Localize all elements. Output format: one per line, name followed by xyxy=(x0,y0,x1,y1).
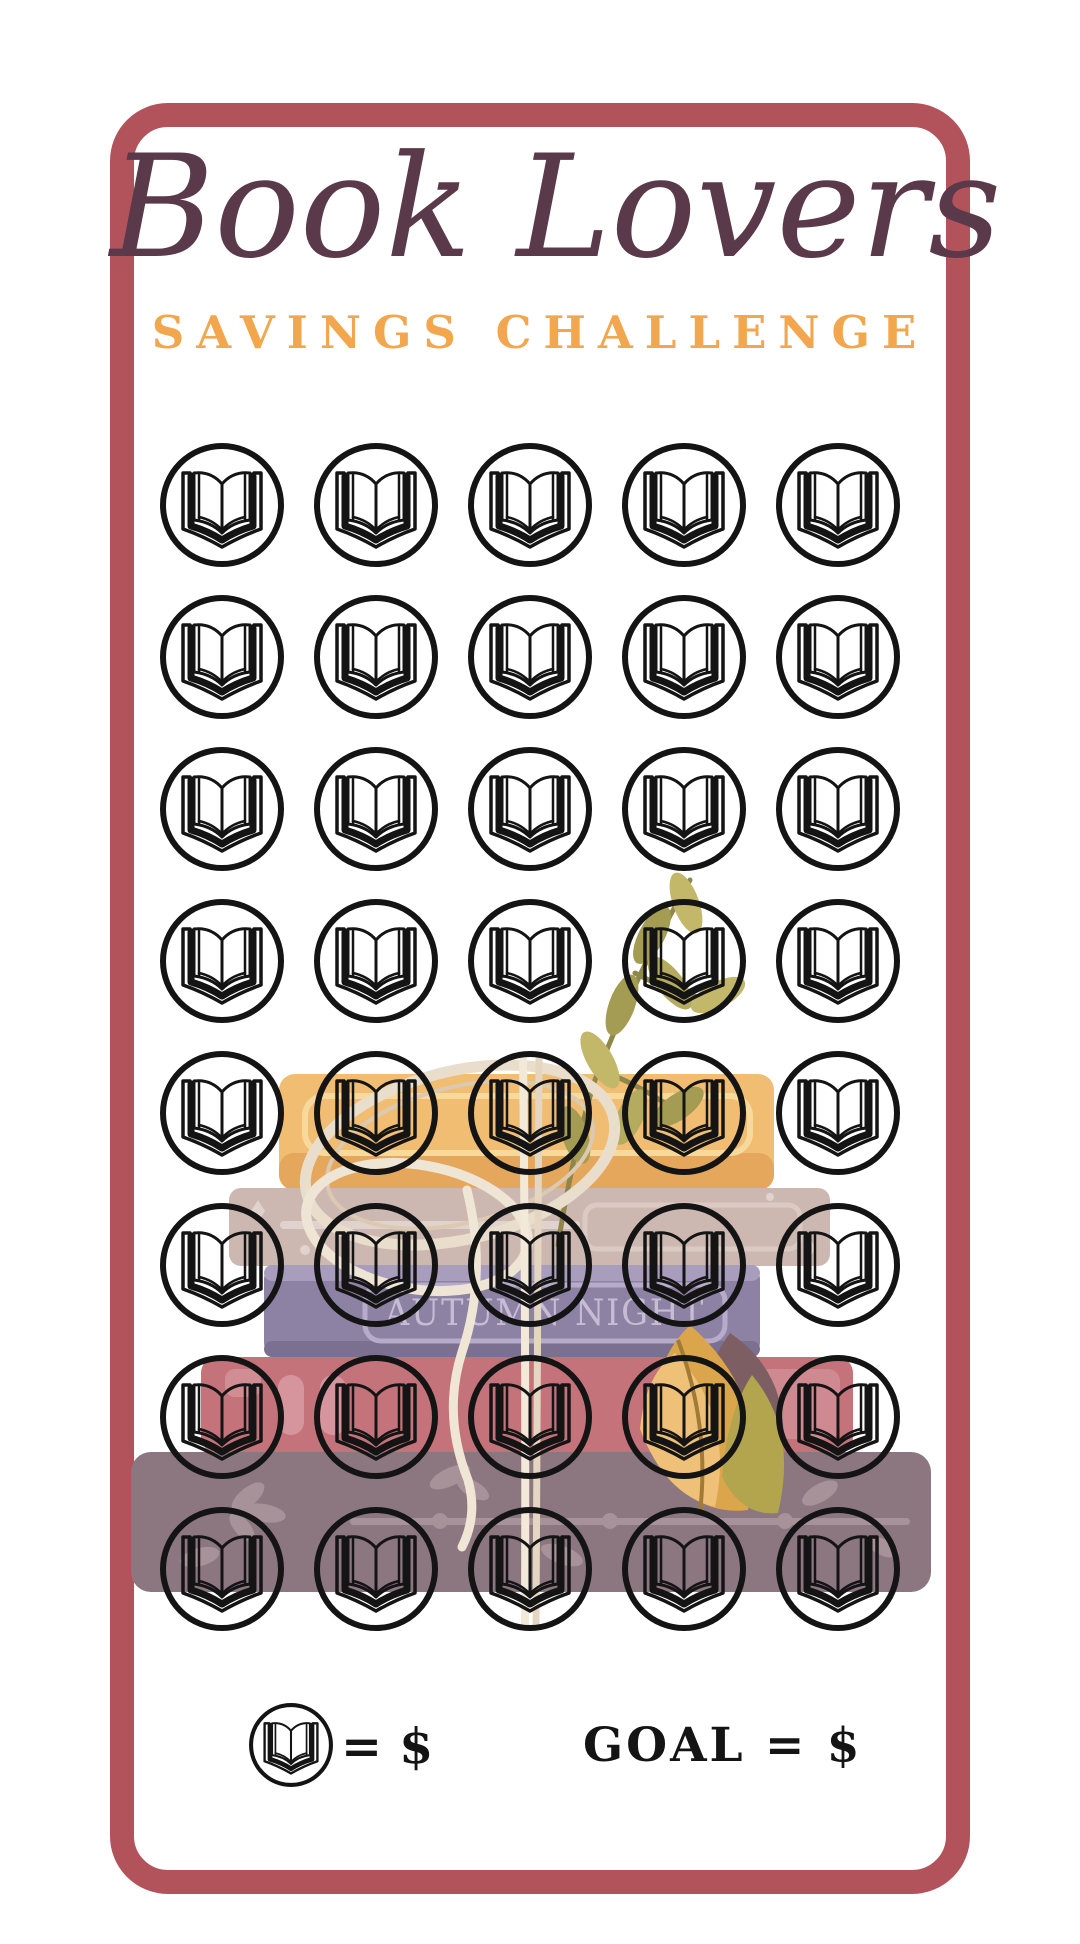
book-slot[interactable] xyxy=(619,1200,749,1330)
book-slot[interactable] xyxy=(773,440,903,570)
open-book-icon xyxy=(773,1200,903,1330)
open-book-icon xyxy=(773,1352,903,1482)
open-book-icon xyxy=(773,744,903,874)
book-slot[interactable] xyxy=(465,744,595,874)
legend-book-icon xyxy=(247,1701,335,1789)
book-slot[interactable] xyxy=(465,1048,595,1178)
book-slot[interactable] xyxy=(157,440,287,570)
open-book-icon xyxy=(157,1048,287,1178)
book-grid xyxy=(157,440,903,1634)
book-slot[interactable] xyxy=(773,1200,903,1330)
open-book-icon xyxy=(619,1048,749,1178)
book-slot[interactable] xyxy=(619,896,749,1026)
open-book-icon xyxy=(619,592,749,722)
book-slot[interactable] xyxy=(465,592,595,722)
open-book-icon xyxy=(157,1504,287,1634)
open-book-icon xyxy=(311,1048,441,1178)
book-slot[interactable] xyxy=(157,1504,287,1634)
open-book-icon xyxy=(157,1200,287,1330)
book-slot[interactable] xyxy=(773,1048,903,1178)
book-slot[interactable] xyxy=(311,592,441,722)
book-slot[interactable] xyxy=(311,1504,441,1634)
book-slot[interactable] xyxy=(465,440,595,570)
book-slot[interactable] xyxy=(619,592,749,722)
open-book-icon xyxy=(465,896,595,1026)
open-book-icon xyxy=(311,744,441,874)
book-slot[interactable] xyxy=(465,1504,595,1634)
open-book-icon xyxy=(619,440,749,570)
open-book-icon xyxy=(465,592,595,722)
book-slot[interactable] xyxy=(619,744,749,874)
open-book-icon xyxy=(465,440,595,570)
open-book-icon xyxy=(619,896,749,1026)
open-book-icon xyxy=(773,440,903,570)
open-book-icon xyxy=(773,592,903,722)
open-book-icon xyxy=(157,440,287,570)
open-book-icon xyxy=(619,1352,749,1482)
book-slot[interactable] xyxy=(619,440,749,570)
open-book-icon xyxy=(773,1048,903,1178)
book-slot[interactable] xyxy=(311,1200,441,1330)
open-book-icon xyxy=(465,1200,595,1330)
open-book-icon xyxy=(157,1352,287,1482)
book-slot[interactable] xyxy=(157,592,287,722)
open-book-icon xyxy=(157,744,287,874)
open-book-icon xyxy=(311,1504,441,1634)
open-book-icon xyxy=(465,744,595,874)
page-title: Book Lovers xyxy=(110,126,970,289)
book-slot[interactable] xyxy=(157,1048,287,1178)
book-slot[interactable] xyxy=(773,744,903,874)
open-book-icon xyxy=(619,1504,749,1634)
book-slot[interactable] xyxy=(619,1352,749,1482)
book-slot[interactable] xyxy=(773,1504,903,1634)
open-book-icon xyxy=(311,1200,441,1330)
open-book-icon xyxy=(247,1701,335,1789)
book-slot[interactable] xyxy=(311,1352,441,1482)
book-slot[interactable] xyxy=(311,440,441,570)
book-slot[interactable] xyxy=(465,1352,595,1482)
book-slot[interactable] xyxy=(311,896,441,1026)
book-slot[interactable] xyxy=(773,896,903,1026)
legend-goal-label: GOAL = $ xyxy=(583,1722,862,1769)
book-slot[interactable] xyxy=(465,1200,595,1330)
legend-unit-label: = $ xyxy=(341,1722,433,1771)
book-slot[interactable] xyxy=(773,1352,903,1482)
book-slot[interactable] xyxy=(157,896,287,1026)
book-slot[interactable] xyxy=(465,896,595,1026)
book-slot[interactable] xyxy=(157,1352,287,1482)
open-book-icon xyxy=(311,592,441,722)
book-slot[interactable] xyxy=(619,1504,749,1634)
book-slot[interactable] xyxy=(157,1200,287,1330)
open-book-icon xyxy=(311,440,441,570)
book-slot[interactable] xyxy=(311,744,441,874)
open-book-icon xyxy=(773,896,903,1026)
open-book-icon xyxy=(619,1200,749,1330)
book-slot[interactable] xyxy=(619,1048,749,1178)
open-book-icon xyxy=(157,592,287,722)
open-book-icon xyxy=(311,1352,441,1482)
open-book-icon xyxy=(773,1504,903,1634)
open-book-icon xyxy=(157,896,287,1026)
book-slot[interactable] xyxy=(157,744,287,874)
open-book-icon xyxy=(311,896,441,1026)
open-book-icon xyxy=(465,1504,595,1634)
book-slot[interactable] xyxy=(773,592,903,722)
open-book-icon xyxy=(619,744,749,874)
book-slot[interactable] xyxy=(311,1048,441,1178)
open-book-icon xyxy=(465,1352,595,1482)
page: Book Lovers SAVINGS CHALLENGE AUTUMN NIG… xyxy=(0,0,1080,1944)
page-subtitle: SAVINGS CHALLENGE xyxy=(110,310,970,355)
open-book-icon xyxy=(465,1048,595,1178)
